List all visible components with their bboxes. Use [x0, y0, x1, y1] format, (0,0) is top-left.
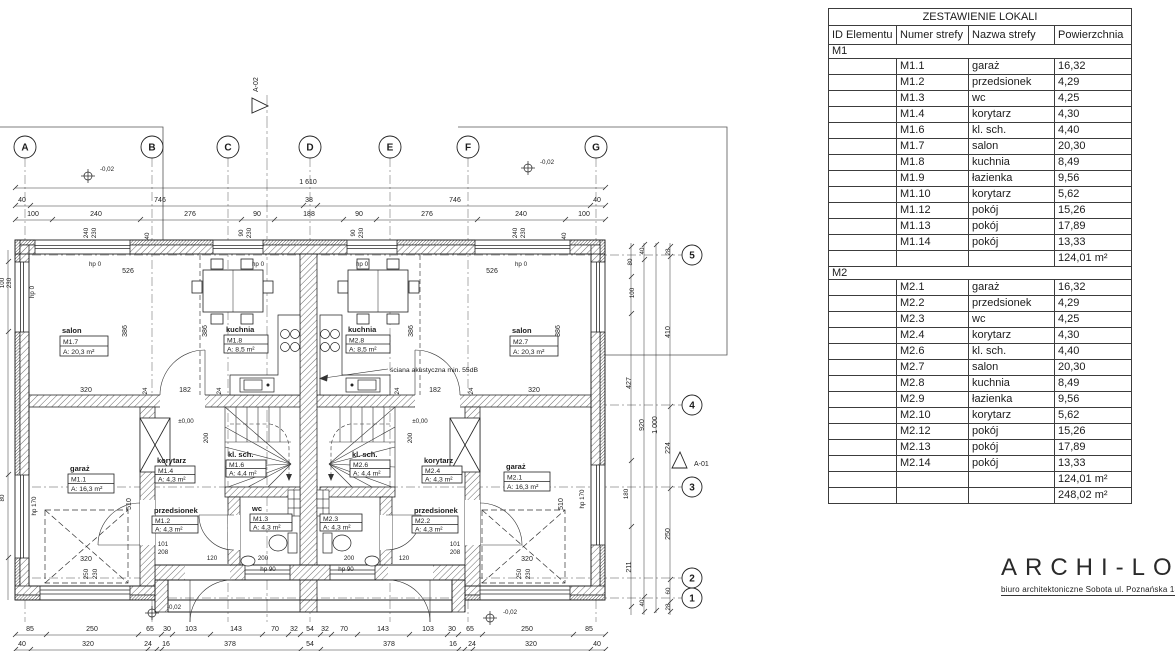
cell-id: [829, 424, 897, 440]
zestawienie-table: ZESTAWIENIE LOKALI ID Elementu Numer str…: [828, 8, 1132, 504]
dimension-label: 40: [18, 197, 26, 204]
studio-address: biuro architektoniczne Sobota ul. Poznań…: [1001, 585, 1175, 596]
dimension-label: hp 170: [579, 489, 586, 508]
svg-text:M1.2: M1.2: [155, 518, 170, 525]
dimension-label: 320: [528, 387, 540, 394]
cell-powierzchnia: 8,49: [1055, 154, 1132, 170]
dimension-label: 24: [468, 641, 476, 648]
cell-numer: M2.4: [897, 328, 969, 344]
svg-text:salon: salon: [512, 326, 532, 335]
dimension-label: 276: [184, 211, 196, 218]
table-row: M2.9 łazienka 9,56: [829, 392, 1132, 408]
cell-numer: M2.10: [897, 408, 969, 424]
table-row: M1.8 kuchnia 8,49: [829, 154, 1132, 170]
grand-total: 248,02 m²: [1055, 488, 1132, 504]
dimension-label: hp 0: [89, 261, 102, 268]
cell-powierzchnia: 4,29: [1055, 296, 1132, 312]
dimension-label: 100: [27, 211, 39, 218]
cell-powierzchnia: 17,89: [1055, 440, 1132, 456]
cell-powierzchnia: 20,30: [1055, 138, 1132, 154]
floor-plan-page: 1 61040746387464010024027690188902762401…: [0, 0, 1175, 651]
dimension-label: 40: [561, 232, 568, 239]
cell-powierzchnia: 9,56: [1055, 392, 1132, 408]
cell-empty: [969, 472, 1055, 488]
cell-nazwa: kuchnia: [969, 154, 1055, 170]
cell-powierzchnia: 15,26: [1055, 202, 1132, 218]
dimension-label: 200: [344, 555, 355, 562]
dimension-label: 16: [449, 641, 457, 648]
svg-text:salon: salon: [62, 326, 82, 335]
cell-nazwa: korytarz: [969, 106, 1055, 122]
dimension-label: 30: [448, 626, 456, 633]
cell-empty: [897, 488, 969, 504]
cell-numer: M1.14: [897, 234, 969, 250]
cell-powierzchnia: 4,25: [1055, 90, 1132, 106]
cell-nazwa: garaż: [969, 58, 1055, 74]
svg-text:M1.7: M1.7: [63, 339, 78, 346]
dimension-label: 526: [122, 268, 134, 275]
room-label-m1-3: wc M1.3 A: 4,3 m²: [250, 504, 292, 532]
m2-subtotal: 124,01 m²: [1055, 472, 1132, 488]
svg-text:F: F: [465, 143, 471, 154]
cell-numer: M1.4: [897, 106, 969, 122]
dimension-label: 30: [163, 626, 171, 633]
table-row: M1.2 przedsionek 4,29: [829, 74, 1132, 90]
table-title: ZESTAWIENIE LOKALI: [829, 9, 1132, 26]
cell-numer: M1.8: [897, 154, 969, 170]
dimension-label: 143: [230, 626, 242, 633]
dimension-label: 208: [158, 549, 169, 556]
table-row: M1.12 pokój 15,26: [829, 202, 1132, 218]
dimension-label: 1 000: [652, 416, 659, 434]
cell-id: [829, 344, 897, 360]
cell-id: [829, 154, 897, 170]
dimension-label: 410: [665, 326, 672, 338]
cell-numer: M1.2: [897, 74, 969, 90]
level-marker-symbol: [81, 169, 95, 183]
cell-powierzchnia: 8,49: [1055, 376, 1132, 392]
dimension-label: -0,02: [100, 166, 115, 173]
dimension-label: 320: [521, 556, 533, 563]
cell-nazwa: pokój: [969, 424, 1055, 440]
svg-text:A: 8,5 m²: A: 8,5 m²: [227, 347, 255, 354]
svg-text:A: A: [21, 143, 28, 154]
cell-id: [829, 106, 897, 122]
svg-text:C: C: [224, 143, 231, 154]
cell-nazwa: pokój: [969, 440, 1055, 456]
dimension-label: 240: [512, 227, 519, 238]
svg-text:kuchnia: kuchnia: [348, 325, 377, 334]
svg-text:1: 1: [689, 594, 695, 605]
cell-numer: M1.1: [897, 58, 969, 74]
table-row: M1.7 salon 20,30: [829, 138, 1132, 154]
svg-text:4: 4: [689, 401, 695, 412]
m1-subtotal: 124,01 m²: [1055, 250, 1132, 266]
svg-text:E: E: [387, 143, 394, 154]
group-row-m2: M2: [829, 266, 1132, 280]
cell-numer: M2.2: [897, 296, 969, 312]
cell-numer: M2.12: [897, 424, 969, 440]
svg-text:M1.1: M1.1: [71, 477, 86, 484]
table-row: M2.7 salon 20,30: [829, 360, 1132, 376]
cell-powierzchnia: 13,33: [1055, 234, 1132, 250]
cell-empty: [829, 472, 897, 488]
dimension-label: 24: [142, 387, 149, 394]
dimension-label: 40: [144, 232, 151, 239]
dimension-label: 182: [429, 387, 441, 394]
cell-id: [829, 122, 897, 138]
grid-bubble-5: 5: [682, 245, 702, 265]
group-label: M1: [829, 45, 1132, 59]
grand-total-row: 248,02 m²: [829, 488, 1132, 504]
dimension-label: 200: [203, 432, 210, 443]
room-label-m2-6: kl. sch. M2.6 A: 4,4 m²: [350, 450, 390, 478]
cell-powierzchnia: 16,32: [1055, 280, 1132, 296]
dimension-label: 120: [399, 555, 410, 562]
room-label-m1-8: kuchnia M1.8 A: 8,5 m²: [224, 325, 268, 354]
cell-id: [829, 138, 897, 154]
grid-bubble-g: G: [585, 136, 607, 158]
cell-nazwa: wc: [969, 90, 1055, 106]
dimension-label: 224: [665, 442, 672, 454]
group-row-m1: M1: [829, 45, 1132, 59]
dimension-label: hp 0: [356, 261, 369, 268]
dimension-label: 90: [350, 229, 357, 236]
svg-text:2: 2: [689, 574, 695, 585]
column-header-nazwa: Nazwa strefy: [969, 26, 1055, 45]
room-label-m1-6: kl. sch. M1.6 A: 4,4 m²: [226, 450, 266, 478]
column-header-powierzchnia: Powierzchnia: [1055, 26, 1132, 45]
dimension-label: 526: [486, 268, 498, 275]
svg-text:M2.3: M2.3: [323, 516, 338, 523]
grid-bubble-a: A: [14, 136, 36, 158]
cell-nazwa: pokój: [969, 202, 1055, 218]
window-left-garage: [15, 475, 30, 558]
dimension-label: hp 90: [338, 566, 354, 573]
dimension-label: 746: [154, 197, 166, 204]
dimension-label: 386: [202, 325, 209, 337]
window-left-salon: [15, 262, 30, 332]
cell-powierzchnia: 5,62: [1055, 186, 1132, 202]
m2-rows: M2.1 garaż 16,32 M2.2 przedsionek 4,29 M…: [829, 280, 1132, 472]
cell-id: [829, 360, 897, 376]
dimension-label: 16: [162, 641, 170, 648]
dimension-label: 54: [306, 641, 314, 648]
dimension-label: 250: [83, 568, 90, 579]
dimension-label: 90: [355, 211, 363, 218]
cell-nazwa: łazienka: [969, 392, 1055, 408]
grid-bubble-f: F: [457, 136, 479, 158]
dimension-label: 103: [422, 626, 434, 633]
cell-nazwa: pokój: [969, 456, 1055, 472]
cell-powierzchnia: 17,89: [1055, 218, 1132, 234]
cell-nazwa: salon: [969, 138, 1055, 154]
svg-text:M2.8: M2.8: [349, 338, 364, 345]
cell-id: [829, 280, 897, 296]
table-row: M1.4 korytarz 4,30: [829, 106, 1132, 122]
svg-text:A: 4,3 m²: A: 4,3 m²: [158, 477, 186, 484]
dimension-label: 143: [377, 626, 389, 633]
dimension-label: ±0,00: [178, 418, 194, 425]
cell-nazwa: łazienka: [969, 170, 1055, 186]
section-marker-a01: A-01: [672, 452, 709, 468]
grid-bubble-2: 2: [682, 568, 702, 588]
svg-text:M2.4: M2.4: [425, 468, 440, 475]
dimension-label: 120: [207, 555, 218, 562]
table-row: M1.6 kl. sch. 4,40: [829, 122, 1132, 138]
cell-nazwa: wc: [969, 312, 1055, 328]
svg-text:A: 4,3 m²: A: 4,3 m²: [415, 527, 443, 534]
grid-bubble-3: 3: [682, 477, 702, 497]
dimension-label: 85: [585, 626, 593, 633]
dimension-label: hp 170: [31, 496, 38, 515]
dimension-label: 320: [82, 641, 94, 648]
cell-id: [829, 170, 897, 186]
cell-powierzchnia: 4,40: [1055, 344, 1132, 360]
cell-numer: M2.9: [897, 392, 969, 408]
cell-powierzchnia: 4,25: [1055, 312, 1132, 328]
cell-nazwa: pokój: [969, 218, 1055, 234]
table-row: M1.3 wc 4,25: [829, 90, 1132, 106]
dimension-label: 240: [515, 211, 527, 218]
grid-bubble-1: 1: [682, 588, 702, 608]
cell-numer: M2.14: [897, 456, 969, 472]
cell-powierzchnia: 5,62: [1055, 408, 1132, 424]
dimension-label: 54: [306, 626, 314, 633]
dimension-label: hp 0: [29, 285, 36, 298]
dimension-label: 65: [146, 626, 154, 633]
svg-text:D: D: [306, 143, 313, 154]
cell-empty: [829, 488, 897, 504]
cell-nazwa: korytarz: [969, 186, 1055, 202]
room-label-m1-4: korytarz M1.4 A: 4,3 m²: [155, 456, 195, 484]
title-block: ARCHI-LOG biuro architektoniczne Sobota …: [1001, 554, 1175, 596]
table-row: M2.6 kl. sch. 4,40: [829, 344, 1132, 360]
garage-gate-m1: [40, 586, 130, 601]
dimension-label: 65: [466, 626, 474, 633]
svg-text:B: B: [148, 143, 155, 154]
cell-powierzchnia: 13,33: [1055, 456, 1132, 472]
cell-id: [829, 90, 897, 106]
dimension-label: 40: [593, 641, 601, 648]
dimension-label: 378: [224, 641, 236, 648]
dimension-label: hp 0: [252, 261, 265, 268]
svg-text:A: 20,3 m²: A: 20,3 m²: [513, 349, 545, 356]
cell-nazwa: przedsionek: [969, 296, 1055, 312]
table-row: M2.10 korytarz 5,62: [829, 408, 1132, 424]
cell-nazwa: kl. sch.: [969, 122, 1055, 138]
m1-rows: M1.1 garaż 16,32 M1.2 przedsionek 4,29 M…: [829, 58, 1132, 250]
studio-logo: ARCHI-LOG: [1001, 554, 1175, 582]
dimension-label: 101: [450, 541, 461, 548]
dimension-label: 80: [0, 494, 6, 501]
cell-numer: M1.6: [897, 122, 969, 138]
cell-powierzchnia: 16,32: [1055, 58, 1132, 74]
dimension-label: 200: [407, 432, 414, 443]
svg-text:A: 4,4 m²: A: 4,4 m²: [229, 471, 257, 478]
table-header-row: ID Elementu Numer strefy Nazwa strefy Po…: [829, 26, 1132, 45]
dimension-label: 230: [91, 227, 98, 238]
m2-subtotal-row: 124,01 m²: [829, 472, 1132, 488]
dimension-label: 28: [665, 603, 672, 610]
cell-empty: [897, 250, 969, 266]
dimension-label: 320: [80, 387, 92, 394]
cell-powierzchnia: 4,30: [1055, 106, 1132, 122]
table-row: M2.13 pokój 17,89: [829, 440, 1132, 456]
cell-empty: [829, 250, 897, 266]
dimension-label: 38: [305, 197, 313, 204]
dimension-label: 276: [421, 211, 433, 218]
cell-numer: M2.8: [897, 376, 969, 392]
cell-id: [829, 234, 897, 250]
cell-id: [829, 296, 897, 312]
dimension-label: 1 610: [299, 179, 317, 186]
cell-numer: M2.7: [897, 360, 969, 376]
room-label-m1-1: garaż M1.1 A: 16,3 m²: [68, 464, 114, 493]
grid-bubble-d: D: [299, 136, 321, 158]
svg-text:korytarz: korytarz: [157, 456, 186, 465]
svg-text:wc: wc: [251, 504, 262, 513]
cell-nazwa: pokój: [969, 234, 1055, 250]
dimension-label: 230: [6, 277, 13, 288]
window-kuchnia-m2: [347, 240, 397, 255]
dimension-label: 230: [92, 568, 99, 579]
dimension-label: ±0,00: [412, 418, 428, 425]
cell-id: [829, 202, 897, 218]
room-label-m2-2: przedsionek M2.2 A: 4,3 m²: [412, 506, 459, 534]
cell-id: [829, 74, 897, 90]
dimension-label: 101: [158, 541, 169, 548]
svg-text:A: 4,4 m²: A: 4,4 m²: [353, 471, 381, 478]
cell-powierzchnia: 4,40: [1055, 122, 1132, 138]
room-label-m2-8: kuchnia M2.8 A: 8,5 m²: [346, 325, 390, 354]
cell-empty: [969, 488, 1055, 504]
cell-nazwa: kl. sch.: [969, 344, 1055, 360]
svg-text:5: 5: [689, 251, 695, 262]
grid-bubbles-rows: 5 4 3 2 1: [682, 245, 702, 608]
svg-text:G: G: [592, 143, 600, 154]
svg-text:przedsionek: przedsionek: [414, 506, 459, 515]
cell-id: [829, 312, 897, 328]
dimension-label: 250: [86, 626, 98, 633]
dimension-label: 32: [321, 626, 329, 633]
dimension-label: hp 0: [515, 261, 528, 268]
svg-text:A: 4,3 m²: A: 4,3 m²: [253, 525, 281, 532]
cell-powierzchnia: 4,29: [1055, 74, 1132, 90]
svg-text:A: 8,5 m²: A: 8,5 m²: [349, 347, 377, 354]
dimension-label: 230: [520, 227, 527, 238]
dimension-label: -0,02: [540, 159, 555, 166]
cell-powierzchnia: 20,30: [1055, 360, 1132, 376]
washbasin-left: [241, 556, 255, 566]
dining-table-right: [338, 259, 419, 324]
interior-walls: [29, 254, 591, 586]
washbasin-right: [365, 556, 379, 566]
dimension-label: 180: [623, 488, 630, 499]
grid-bubble-b: B: [141, 136, 163, 158]
svg-text:ściana akustyczna min. 55dB: ściana akustyczna min. 55dB: [390, 367, 478, 374]
dimension-label: 100: [578, 211, 590, 218]
svg-text:M2.1: M2.1: [507, 475, 522, 482]
dimension-label: 40: [639, 247, 646, 254]
table-row: M2.2 przedsionek 4,29: [829, 296, 1132, 312]
window-right-garage: [591, 465, 606, 545]
svg-text:A-01: A-01: [694, 461, 709, 468]
room-label-m1-2: przedsionek M1.2 A: 4,3 m²: [152, 506, 199, 534]
dimension-label: 24: [468, 387, 475, 394]
room-label-m2-1: garaż M2.1 A: 16,3 m²: [504, 462, 550, 491]
cell-powierzchnia: 15,26: [1055, 424, 1132, 440]
floor-plan-svg: 1 61040746387464010024027690188902762401…: [0, 0, 830, 651]
svg-text:garaż: garaż: [506, 462, 526, 471]
dimension-label: 320: [525, 641, 537, 648]
table-row: M1.13 pokój 17,89: [829, 218, 1132, 234]
table-row: M1.10 korytarz 5,62: [829, 186, 1132, 202]
toilet-left: [269, 533, 297, 553]
dimension-label: 188: [303, 211, 315, 218]
svg-text:kl. sch.: kl. sch.: [228, 450, 253, 459]
dimension-label: 100: [629, 287, 636, 298]
cell-nazwa: korytarz: [969, 328, 1055, 344]
dimension-label: -0,02: [167, 604, 182, 611]
cell-numer: M2.13: [897, 440, 969, 456]
cell-id: [829, 218, 897, 234]
dimension-label: 250: [516, 568, 523, 579]
svg-text:kl. sch.: kl. sch.: [352, 450, 377, 459]
svg-text:A: 16,3 m²: A: 16,3 m²: [507, 484, 539, 491]
m1-subtotal-row: 124,01 m²: [829, 250, 1132, 266]
table-row: M2.12 pokój 15,26: [829, 424, 1132, 440]
svg-text:M2.2: M2.2: [415, 518, 430, 525]
dimension-label: 28: [665, 248, 672, 255]
column-header-id: ID Elementu: [829, 26, 897, 45]
table-title-row: ZESTAWIENIE LOKALI: [829, 9, 1132, 26]
cell-powierzchnia: 4,30: [1055, 328, 1132, 344]
dimension-label: 80: [627, 258, 634, 265]
svg-text:A: 4,3 m²: A: 4,3 m²: [323, 525, 351, 532]
dimension-label: 24: [216, 387, 223, 394]
dining-table-left: [192, 259, 273, 324]
cell-nazwa: korytarz: [969, 408, 1055, 424]
garage-clearance-right: [482, 510, 565, 583]
dimension-label: 386: [122, 325, 129, 337]
table-row: M2.8 kuchnia 8,49: [829, 376, 1132, 392]
svg-text:korytarz: korytarz: [424, 456, 453, 465]
cell-id: [829, 408, 897, 424]
dimension-label: 32: [290, 626, 298, 633]
dimension-label: 746: [449, 197, 461, 204]
dimension-label: 250: [665, 528, 672, 540]
dimension-label: 70: [340, 626, 348, 633]
svg-text:M1.3: M1.3: [253, 516, 268, 523]
dimension-label: hp 90: [260, 566, 276, 573]
svg-text:A: 4,3 m²: A: 4,3 m²: [425, 477, 453, 484]
dimension-label: 230: [358, 227, 365, 238]
window-kuchnia-m1: [213, 240, 263, 255]
level-marker-symbol: [521, 161, 535, 175]
svg-text:A: 20,3 m²: A: 20,3 m²: [63, 349, 95, 356]
cell-numer: M1.10: [897, 186, 969, 202]
dimension-label: 40: [18, 641, 26, 648]
table-row: M2.1 garaż 16,32: [829, 280, 1132, 296]
svg-text:M1.6: M1.6: [229, 462, 244, 469]
room-label-m1-7: salon M1.7 A: 20,3 m²: [60, 326, 108, 356]
cell-numer: M1.12: [897, 202, 969, 218]
room-label-m2-3: M2.3 A: 4,3 m²: [320, 514, 362, 532]
toilet-right: [323, 533, 351, 553]
cell-id: [829, 440, 897, 456]
svg-text:A: 4,3 m²: A: 4,3 m²: [155, 527, 183, 534]
